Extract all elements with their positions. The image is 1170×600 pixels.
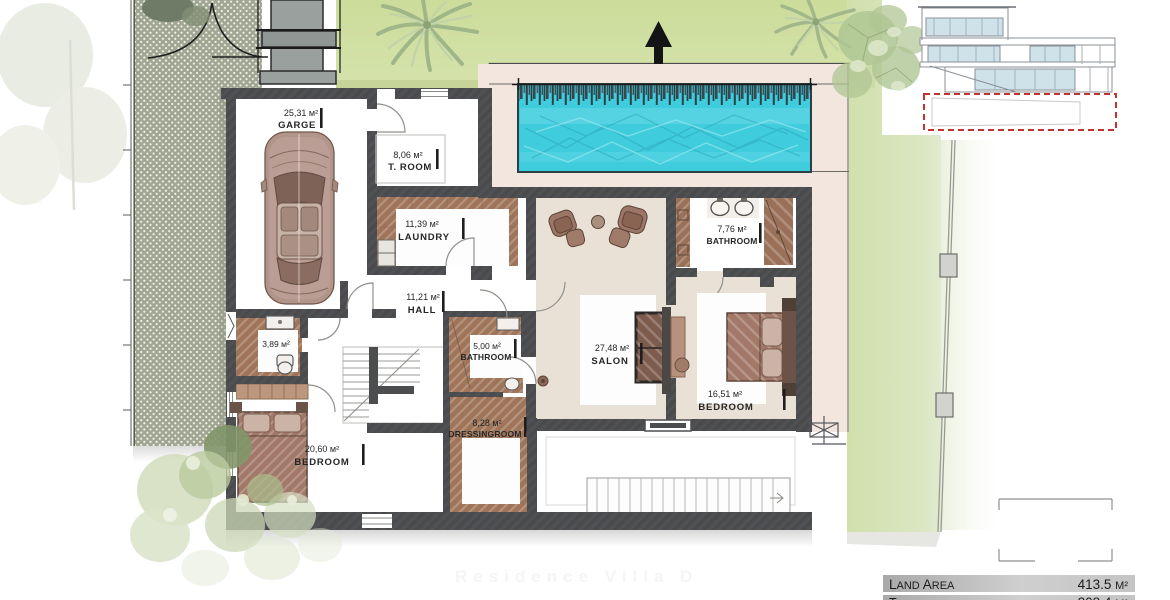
svg-text:BEDROOM: BEDROOM bbox=[294, 457, 349, 468]
svg-text:Residence Villa D: Residence Villa D bbox=[455, 567, 698, 586]
svg-text:5,00 м²: 5,00 м² bbox=[473, 341, 501, 351]
svg-text:7,76 м²: 7,76 м² bbox=[717, 224, 746, 234]
svg-text:LAND AREA: LAND AREA bbox=[889, 577, 955, 592]
svg-text:GARGE: GARGE bbox=[278, 120, 316, 131]
svg-text:16,51 м²: 16,51 м² bbox=[708, 389, 742, 399]
svg-text:3,89 м²: 3,89 м² bbox=[262, 339, 290, 349]
svg-text:DRESSINGROOM: DRESSINGROOM bbox=[448, 429, 521, 439]
svg-text:T. ROOM: T. ROOM bbox=[388, 162, 432, 173]
svg-text:BATHROOM: BATHROOM bbox=[706, 236, 757, 246]
svg-text:413.5 М²: 413.5 М² bbox=[1078, 577, 1129, 592]
svg-text:SALON: SALON bbox=[591, 356, 628, 367]
svg-text:BATHROOM: BATHROOM bbox=[460, 352, 511, 362]
svg-text:11,21 м²: 11,21 м² bbox=[406, 292, 440, 302]
svg-text:11,39 м²: 11,39 м² bbox=[405, 219, 439, 229]
svg-text:BEDROOM: BEDROOM bbox=[698, 402, 753, 413]
svg-text:25,31 м²: 25,31 м² bbox=[284, 108, 318, 118]
svg-text:8,06 м²: 8,06 м² bbox=[393, 150, 422, 160]
svg-text:27,48 м²: 27,48 м² bbox=[595, 343, 629, 353]
svg-text:LAUNDRY: LAUNDRY bbox=[398, 232, 450, 243]
svg-text:8,28 м²: 8,28 м² bbox=[472, 418, 501, 428]
svg-text:HALL: HALL bbox=[408, 305, 437, 316]
svg-text:20,60 м²: 20,60 м² bbox=[305, 444, 339, 454]
